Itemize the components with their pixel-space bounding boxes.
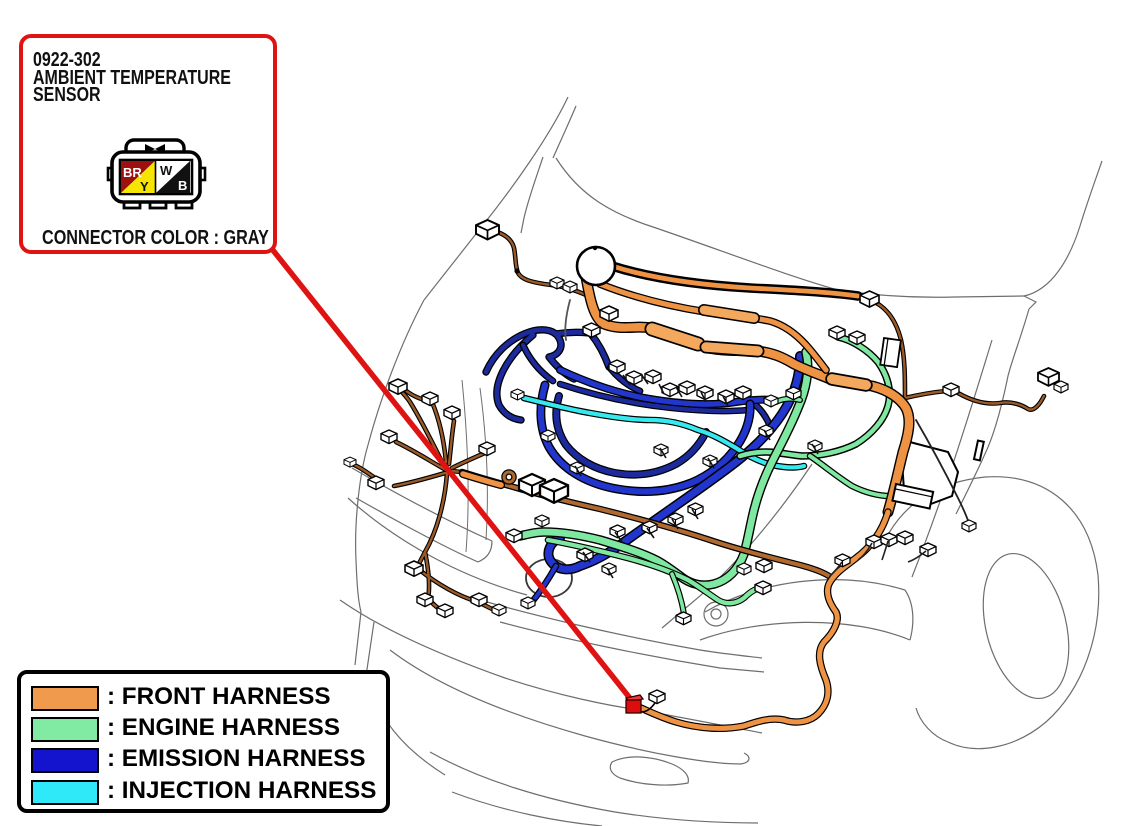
svg-text:BR: BR (123, 165, 142, 180)
svg-text:W: W (160, 163, 173, 178)
svg-text:Y: Y (140, 179, 149, 194)
svg-text:B: B (178, 178, 187, 193)
